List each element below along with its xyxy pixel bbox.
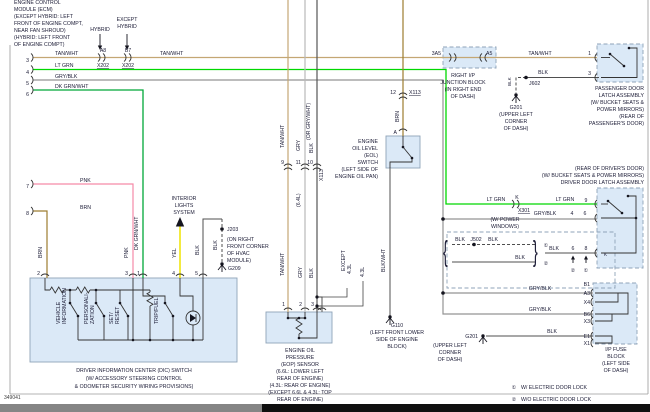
- diagram-label: DRIVER DOOR LATCH ASSEMBLY: [561, 180, 645, 186]
- diagram-label: G209: [228, 266, 241, 272]
- diagram-label: (OR GRY/WHT): [306, 103, 312, 140]
- diagram-label: ENGINE CONTROL: [14, 0, 61, 6]
- diagram-label: LT GRN: [487, 197, 506, 203]
- diagram-label: 4: [172, 271, 175, 277]
- diagram-label: POWER MIRRORS): [597, 107, 645, 113]
- splice-dot: [635, 217, 638, 220]
- diagram-label: 5: [26, 81, 29, 87]
- splice-dot: [298, 317, 301, 320]
- diagram-label: 5: [195, 271, 198, 277]
- diagram-label: BLK: [455, 237, 465, 243]
- diagram-label: DK GRN/WHT: [134, 216, 140, 250]
- wire: [31, 54, 33, 62]
- diagram-label: (EXCEPT HYBRID: LEFT: [14, 14, 74, 20]
- wiring-diagram-page: ENGINE CONTROLMODULE (ECM)(EXCEPT HYBRID…: [0, 0, 650, 412]
- diagram-label: 12: [390, 90, 396, 96]
- diagram-label: GRY: [296, 139, 302, 151]
- diagram-label: MODULE): [227, 258, 251, 264]
- diagram-label: B6: [584, 312, 590, 318]
- diagram-label: BLOCK: [607, 354, 625, 360]
- diagram-label: JUNCTION BLOCK: [440, 80, 486, 86]
- diagram-label: GRY/BLK: [529, 307, 552, 313]
- diagram-label: 9: [585, 198, 588, 204]
- splice-dot: [623, 65, 626, 68]
- diagram-label: 11: [296, 160, 301, 166]
- diagram-label: YEL: [172, 248, 178, 258]
- diagram-label: (LEFT SIDE OF: [341, 167, 378, 173]
- diagram-label: GRY: [298, 266, 304, 278]
- diagram-label: GRY/BLK: [529, 286, 552, 292]
- diagram-label: ①: [512, 385, 517, 391]
- wire: [31, 207, 33, 215]
- diagram-label: W/O ELECTRIC DOOR LOCK: [521, 397, 592, 403]
- diagram-label: G201: [510, 105, 523, 111]
- diagram-label: 6: [584, 211, 587, 217]
- diagram-label: 6: [572, 246, 575, 252]
- diagram-label: BLK: [213, 240, 219, 250]
- diagram-label: WINDOWS): [491, 224, 519, 230]
- diagram-label: B1: [584, 282, 590, 288]
- diagram-label: 1: [282, 302, 285, 308]
- splice-dot: [172, 315, 175, 318]
- diagram-label: J203: [227, 227, 238, 233]
- diagram-label: ENGINE: [358, 139, 378, 145]
- splice-dot: [609, 53, 612, 56]
- arrow-icon: [584, 256, 588, 260]
- diagram-label: (LEFT FRONT LOWER: [370, 330, 424, 336]
- diagram-label: HYBRID: [117, 24, 137, 30]
- diagram-label: LT GRN: [556, 197, 575, 203]
- diagram-label: K: [515, 195, 519, 201]
- diagram-label: A5: [486, 51, 492, 57]
- diagram-label: 4: [26, 70, 29, 76]
- diagram-label: 1: [137, 271, 140, 277]
- diagram-label: (ON RIGHT: [227, 237, 255, 243]
- diagram-label: 3: [125, 271, 128, 277]
- diagram-label: OF DASH): [451, 94, 476, 100]
- diagram-label: BLOCK): [387, 344, 407, 350]
- diagram-label: J602: [529, 81, 540, 87]
- bottom-bar: [0, 404, 262, 412]
- splice-dot: [315, 304, 318, 307]
- wire: [31, 180, 33, 188]
- diagram-label: X4: [584, 300, 590, 306]
- wire: [31, 66, 33, 74]
- diagram-label: FRONT CORNER: [227, 244, 269, 250]
- diagram-label: E1: [584, 334, 590, 340]
- splice-dot: [127, 315, 130, 318]
- diagram-label: (W/ BUCKET SEATS & POWER MIRRORS): [542, 173, 644, 179]
- diagram-label: ZATION: [90, 305, 96, 324]
- splice-dot: [628, 47, 631, 50]
- diagram-label: BLK: [195, 245, 201, 255]
- diagram-label: BLK: [549, 246, 559, 252]
- diagram-label: LATCH ASSEMBLY: [599, 93, 645, 99]
- diagram-label: ENGINE OIL PAN): [335, 174, 378, 180]
- diagram-label: (4.3L: REAR OF ENGINE): [270, 383, 331, 389]
- splice-dot: [472, 243, 476, 247]
- diagram-label: I/P FUSE: [605, 347, 627, 353]
- diagram-label: LIGHTS: [175, 203, 194, 209]
- diagram-label: TRIP/FUEL: [154, 297, 160, 324]
- wire: [516, 78, 526, 94]
- diagram-label: X113: [409, 90, 421, 96]
- splice-dot: [149, 339, 152, 342]
- splice-dot: [304, 317, 307, 320]
- diagram-label: MODULE (ECM): [14, 7, 53, 13]
- diagram-label: (EXCEPT 6.6L & 4.3L: TOP: [268, 390, 332, 396]
- splice-dot: [524, 76, 528, 80]
- diagram-label: TAN/WHT: [280, 124, 286, 148]
- diagram-label: 4: [571, 211, 574, 217]
- diagram-label: (6.6L: LOWER LEFT: [276, 369, 325, 375]
- diagram-label: OF HVAC: [227, 251, 250, 257]
- diagram-label: CORNER: [439, 350, 462, 356]
- diagram-label: 3: [26, 58, 29, 64]
- diagram-label: ①: [544, 243, 549, 249]
- splice-dot: [164, 302, 167, 305]
- diagram-label: BRN: [395, 111, 401, 122]
- diagram-label: W/ ELECTRIC DOOR LOCK: [521, 385, 588, 391]
- diagram-label: SIDE OF ENGINE: [376, 337, 419, 343]
- diagram-label: (REAR OF DRIVER'S DOOR): [575, 166, 644, 172]
- diagram-label: PRESSURE: [286, 355, 315, 361]
- diagram-label: X3: [584, 319, 590, 325]
- diagram-label: RIGHT I/P: [451, 73, 475, 79]
- component-box: [593, 283, 637, 344]
- diagram-label: A3: [584, 291, 590, 297]
- diagram-label: A: [394, 130, 398, 136]
- diagram-label: REAR OF ENGINE): [277, 397, 323, 403]
- diagram-label: BLK: [538, 70, 548, 76]
- diagram-label: 1: [588, 51, 591, 57]
- diagram-label: 3: [311, 302, 314, 308]
- diagram-label: RESET: [115, 306, 121, 324]
- splice-dot: [298, 337, 301, 340]
- diagram-label: 7: [26, 184, 29, 190]
- diagram-label: 3A5: [432, 51, 441, 57]
- diagram-label: EXCEPT: [117, 17, 139, 23]
- diagram-label: NEAR FAN SHROUD): [14, 28, 66, 34]
- diagram-label: TAN/WHT: [528, 51, 552, 57]
- diagram-label: (LEFT SIDE: [602, 361, 630, 367]
- diagram-label: BRN: [80, 205, 91, 211]
- diagram-label: (EOP) SENSOR: [281, 362, 319, 368]
- bottom-bar: [262, 404, 650, 412]
- diagram-label: (W/ BUCKET SEATS &: [591, 100, 645, 106]
- diagram-label: HYBRID: [90, 27, 110, 33]
- wire: [319, 281, 363, 306]
- diagram-label: 8: [585, 246, 588, 252]
- splice-dot: [402, 146, 405, 149]
- diagram-label: 6: [26, 92, 29, 98]
- diagram-label: LT GRN: [55, 63, 74, 69]
- diagram-label: (REAR OF: [619, 114, 644, 120]
- wire: [31, 86, 33, 94]
- diagram-label: SWITCH: [358, 160, 379, 166]
- diagram-label: REAR OF ENGINE): [277, 376, 323, 382]
- diagram-label: A8: [100, 48, 106, 54]
- diagram-label: BLK: [515, 255, 525, 261]
- diagram-label: J502: [470, 237, 481, 243]
- diagram-label: BLK: [309, 268, 315, 278]
- diagram-label: BLK: [309, 143, 315, 153]
- diagram-label: GRY/BLK: [534, 211, 557, 217]
- diagram-label: 8: [26, 211, 29, 217]
- splice-dot: [220, 227, 224, 231]
- diagram-label: (W/ ACCESSORY STEERING CONTROL: [86, 376, 182, 382]
- diagram-label: & ODOMETER SECURITY WIRING PROVISIONS): [75, 384, 194, 390]
- splice-dot: [287, 317, 290, 320]
- ground-icon: [479, 337, 487, 344]
- wire: [41, 274, 49, 276]
- splice-dot: [77, 315, 80, 318]
- diagram-label: OF DASH): [504, 126, 529, 132]
- diagram-label: G201: [465, 334, 478, 340]
- wire: [33, 211, 47, 278]
- diagram-label: BLK: [507, 76, 512, 86]
- diagram-label: OF DASH): [604, 368, 629, 374]
- diagram-label: 3: [588, 71, 591, 77]
- splice-dot: [95, 302, 98, 305]
- diagram-number: 349041: [4, 395, 21, 401]
- splice-dot: [441, 217, 445, 221]
- diagram-label: X113: [319, 169, 325, 181]
- diagram-label: SYSTEM: [173, 210, 194, 216]
- arrow-icon: [571, 256, 575, 260]
- diagram-label: DK GRN/WHT: [55, 84, 89, 90]
- diagram-label: 9: [281, 160, 284, 166]
- diagram-label: BRN: [38, 247, 44, 258]
- splice-dot: [132, 339, 135, 342]
- diagram-label: PASSENGER DOOR: [595, 86, 644, 92]
- diagram-label: B7: [125, 48, 131, 54]
- arrow-icon: [176, 217, 184, 227]
- diagram-label: DRIVER INFORMATION CENTER (DIC) SWITCH: [76, 368, 192, 374]
- wire: [31, 76, 33, 84]
- diagram-label: OF DASH): [438, 357, 463, 363]
- splice-dot: [315, 295, 318, 298]
- diagram-label: 2: [37, 271, 40, 277]
- diagram-label: BLK/WHT: [381, 248, 387, 272]
- diagram-label: (HYBRID: LEFT FRONT: [14, 35, 71, 41]
- splice-dot: [69, 302, 72, 305]
- diagram-label: ②: [512, 397, 517, 403]
- diagram-label: X202: [97, 63, 109, 69]
- splice-dot: [192, 339, 195, 342]
- diagram-label: (UPPER LEFT: [433, 343, 468, 349]
- diagram-label: X1: [584, 341, 590, 347]
- diagram-label: INFORMATION: [62, 288, 68, 324]
- diagram-label: TAN/WHT: [55, 51, 79, 57]
- diagram-label: ENGINE OIL: [285, 348, 315, 354]
- splice-dot: [607, 200, 610, 203]
- diagram-label: FRONT OF ENGINE COMPT,: [14, 21, 83, 27]
- diagram-label: BLK: [547, 329, 557, 335]
- diagram-label: ②: [544, 261, 549, 267]
- diagram-label: }: [533, 236, 538, 268]
- splice-dot: [627, 195, 630, 198]
- splice-dot: [119, 302, 122, 305]
- diagram-label: PASSENGER'S DOOR): [589, 121, 644, 127]
- splice-dot: [95, 289, 98, 292]
- diagram-label: (EOL): [364, 153, 378, 159]
- ground-icon: [218, 265, 226, 272]
- wiring-diagram-canvas: ENGINE CONTROLMODULE (ECM)(EXCEPT HYBRID…: [0, 0, 650, 412]
- diagram-label: GRY/BLK: [55, 74, 78, 80]
- diagram-label: BLK: [488, 237, 498, 243]
- splice-dot: [411, 157, 414, 160]
- diagram-label: 4.3L: [347, 264, 353, 274]
- splice-dot: [441, 291, 445, 295]
- diagram-label: OF ENGINE COMPT): [14, 42, 65, 48]
- diagram-label: 10: [307, 160, 313, 166]
- diagram-label: CORNER: [505, 119, 528, 125]
- diagram-label: X301: [518, 208, 530, 214]
- diagram-label: PNK: [124, 247, 130, 258]
- diagram-label: TAN/WHT: [160, 51, 184, 57]
- splice-dot: [103, 315, 106, 318]
- diagram-label: TAN/WHT: [280, 252, 286, 276]
- diagram-label: ①: [584, 268, 589, 274]
- diagram-label: {: [443, 236, 448, 268]
- diagram-label: X202: [122, 63, 134, 69]
- wire: [33, 184, 133, 278]
- diagram-label: (IN RIGHT END: [445, 87, 482, 93]
- splice-dot: [69, 289, 72, 292]
- diagram-label: (6.4L): [296, 193, 302, 207]
- diagram-label: (UPPER LEFT: [499, 112, 534, 118]
- diagram-label: ②: [571, 268, 576, 274]
- splice-dot: [172, 339, 175, 342]
- diagram-label: 2: [299, 302, 302, 308]
- splice-dot: [621, 212, 624, 215]
- diagram-label: OIL LEVEL: [352, 146, 378, 152]
- diagram-label: (W/ POWER: [490, 217, 519, 223]
- diagram-label: PNK: [80, 178, 91, 184]
- diagram-label: INTERIOR: [172, 196, 197, 202]
- diagram-label: G110: [391, 323, 403, 329]
- wire: [319, 288, 347, 297]
- ground-icon: [512, 96, 520, 103]
- diagram-label: 4.3L: [360, 267, 366, 277]
